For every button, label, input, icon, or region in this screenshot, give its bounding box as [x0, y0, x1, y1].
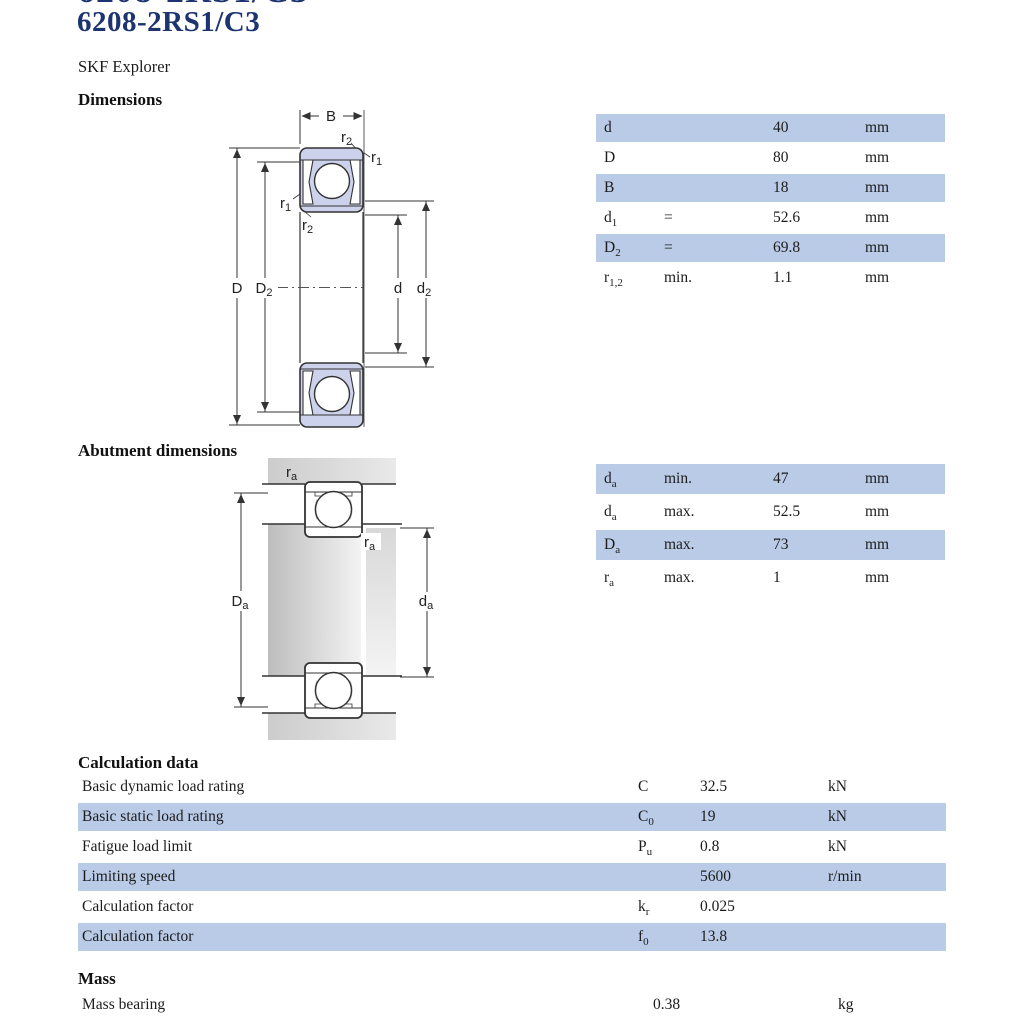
cell-symbol: da: [604, 464, 664, 494]
label-r1-top: r1: [371, 149, 382, 168]
cell-value: 0.8: [700, 833, 828, 861]
cell-unit: mm: [865, 530, 945, 560]
cell-value: 47: [773, 464, 865, 494]
bearing-cross-section: [277, 148, 363, 427]
table-row: da max. 52.5 mm: [596, 497, 945, 527]
cell-label: Limiting speed: [82, 863, 638, 891]
cell-label: Mass bearing: [82, 992, 653, 1018]
cell-label: Calculation factor: [82, 923, 638, 951]
cell-unit: kN: [828, 803, 946, 831]
table-row: Basic static load rating C0 19 kN: [78, 803, 946, 831]
section-heading-abutment: Abutment dimensions: [78, 441, 237, 461]
cell-value: 52.6: [773, 204, 865, 232]
label-D: D: [232, 280, 243, 297]
cell-symbol: D: [604, 144, 664, 172]
table-row: Calculation factor f0 13.8: [78, 923, 946, 951]
cell-value: 18: [773, 174, 865, 202]
cell-symbol: f0: [638, 923, 700, 951]
cell-value: 0.38: [653, 992, 838, 1018]
cell-spec: =: [664, 204, 773, 232]
cell-unit: mm: [865, 497, 945, 527]
table-row: B 18 mm: [596, 174, 945, 202]
cell-value: 1.1: [773, 264, 865, 292]
cell-spec: [664, 144, 773, 172]
subtitle: SKF Explorer: [78, 57, 170, 77]
table-row: d 40 mm: [596, 114, 945, 142]
cell-label: Fatigue load limit: [82, 833, 638, 861]
cell-spec: max.: [664, 563, 773, 593]
cell-unit: kN: [828, 833, 946, 861]
table-row: r1,2 min. 1.1 mm: [596, 264, 945, 292]
label-B: B: [326, 108, 336, 125]
section-heading-calculation: Calculation data: [78, 753, 198, 773]
cell-label: Basic dynamic load rating: [82, 773, 638, 801]
cell-symbol: Da: [604, 530, 664, 560]
mass-table-row: Mass bearing 0.38 kg: [78, 992, 950, 1018]
abutment-table: da min. 47 mm da max. 52.5 mm Da max. 73…: [596, 464, 945, 596]
cell-unit: mm: [865, 204, 945, 232]
table-row: da min. 47 mm: [596, 464, 945, 494]
top-clipped-heading-text: 6208-2RS1/C3: [77, 0, 497, 5]
cell-symbol: r1,2: [604, 264, 664, 292]
cell-value: 52.5: [773, 497, 865, 527]
cell-unit: kg: [838, 992, 950, 1018]
label-r2-left: r2: [302, 217, 313, 236]
section-heading-dimensions: Dimensions: [78, 90, 162, 110]
table-row: Fatigue load limit Pu 0.8 kN: [78, 833, 946, 861]
abutment-drawing: ra ra Da da: [215, 455, 450, 750]
cell-unit: kN: [828, 773, 946, 801]
cell-unit: mm: [865, 144, 945, 172]
cell-value: 5600: [700, 863, 828, 891]
cell-unit: [828, 893, 946, 921]
cell-symbol: C0: [638, 803, 700, 831]
table-row: D2 = 69.8 mm: [596, 234, 945, 262]
cell-symbol: da: [604, 497, 664, 527]
cell-spec: min.: [664, 464, 773, 494]
cell-unit: mm: [865, 174, 945, 202]
cell-value: 32.5: [700, 773, 828, 801]
table-row: Calculation factor kr 0.025: [78, 893, 946, 921]
cell-unit: mm: [865, 264, 945, 292]
cell-symbol: d: [604, 114, 664, 142]
label-d: d: [394, 280, 402, 297]
label-r1-left: r1: [280, 195, 291, 214]
cell-symbol: [638, 863, 700, 891]
cell-spec: =: [664, 234, 773, 262]
cell-unit: [828, 923, 946, 951]
table-row: Basic dynamic load rating C 32.5 kN: [78, 773, 946, 801]
table-row: d1 = 52.6 mm: [596, 204, 945, 232]
cell-unit: mm: [865, 563, 945, 593]
cell-value: 13.8: [700, 923, 828, 951]
cell-symbol: ra: [604, 563, 664, 593]
cell-value: 1: [773, 563, 865, 593]
calculation-table: Basic dynamic load rating C 32.5 kN Basi…: [78, 773, 946, 953]
cell-symbol: C: [638, 773, 700, 801]
table-row: ra max. 1 mm: [596, 563, 945, 593]
cell-value: 19: [700, 803, 828, 831]
cell-symbol: d1: [604, 204, 664, 232]
cell-value: 69.8: [773, 234, 865, 262]
top-clipped-heading: 6208-2RS1/C3: [77, 0, 497, 5]
cell-unit: mm: [865, 234, 945, 262]
cell-spec: max.: [664, 530, 773, 560]
cell-label: Basic static load rating: [82, 803, 638, 831]
cell-value: 40: [773, 114, 865, 142]
cell-unit: r/min: [828, 863, 946, 891]
cell-symbol: B: [604, 174, 664, 202]
ball-bottom: [316, 673, 352, 709]
cell-spec: [664, 114, 773, 142]
cell-label: Calculation factor: [82, 893, 638, 921]
ball-top: [316, 492, 352, 528]
cell-symbol: kr: [638, 893, 700, 921]
section-heading-mass: Mass: [78, 969, 116, 989]
table-row: Da max. 73 mm: [596, 530, 945, 560]
ball-top: [315, 164, 350, 199]
dimensions-table: d 40 mm D 80 mm B 18 mm d1 = 52.6 mm D2 …: [596, 114, 945, 294]
table-row: D 80 mm: [596, 144, 945, 172]
cell-value: 73: [773, 530, 865, 560]
dimensions-drawing: B r2 r1 r1 r2 D D2 d d2: [215, 100, 475, 440]
page-title: 6208-2RS1/C3: [77, 6, 260, 39]
cell-spec: min.: [664, 264, 773, 292]
cell-value: 0.025: [700, 893, 828, 921]
cell-symbol: Pu: [638, 833, 700, 861]
table-row: Limiting speed 5600 r/min: [78, 863, 946, 891]
label-r2-top: r2: [341, 129, 352, 148]
cell-symbol: D2: [604, 234, 664, 262]
shaft-block: [268, 524, 361, 676]
cell-unit: mm: [865, 114, 945, 142]
product-datasheet-page: 6208-2RS1/C3 6208-2RS1/C3 SKF Explorer D…: [0, 0, 1024, 1024]
cell-spec: [664, 174, 773, 202]
ball-bottom: [315, 377, 350, 412]
cell-value: 80: [773, 144, 865, 172]
cell-spec: max.: [664, 497, 773, 527]
cell-unit: mm: [865, 464, 945, 494]
